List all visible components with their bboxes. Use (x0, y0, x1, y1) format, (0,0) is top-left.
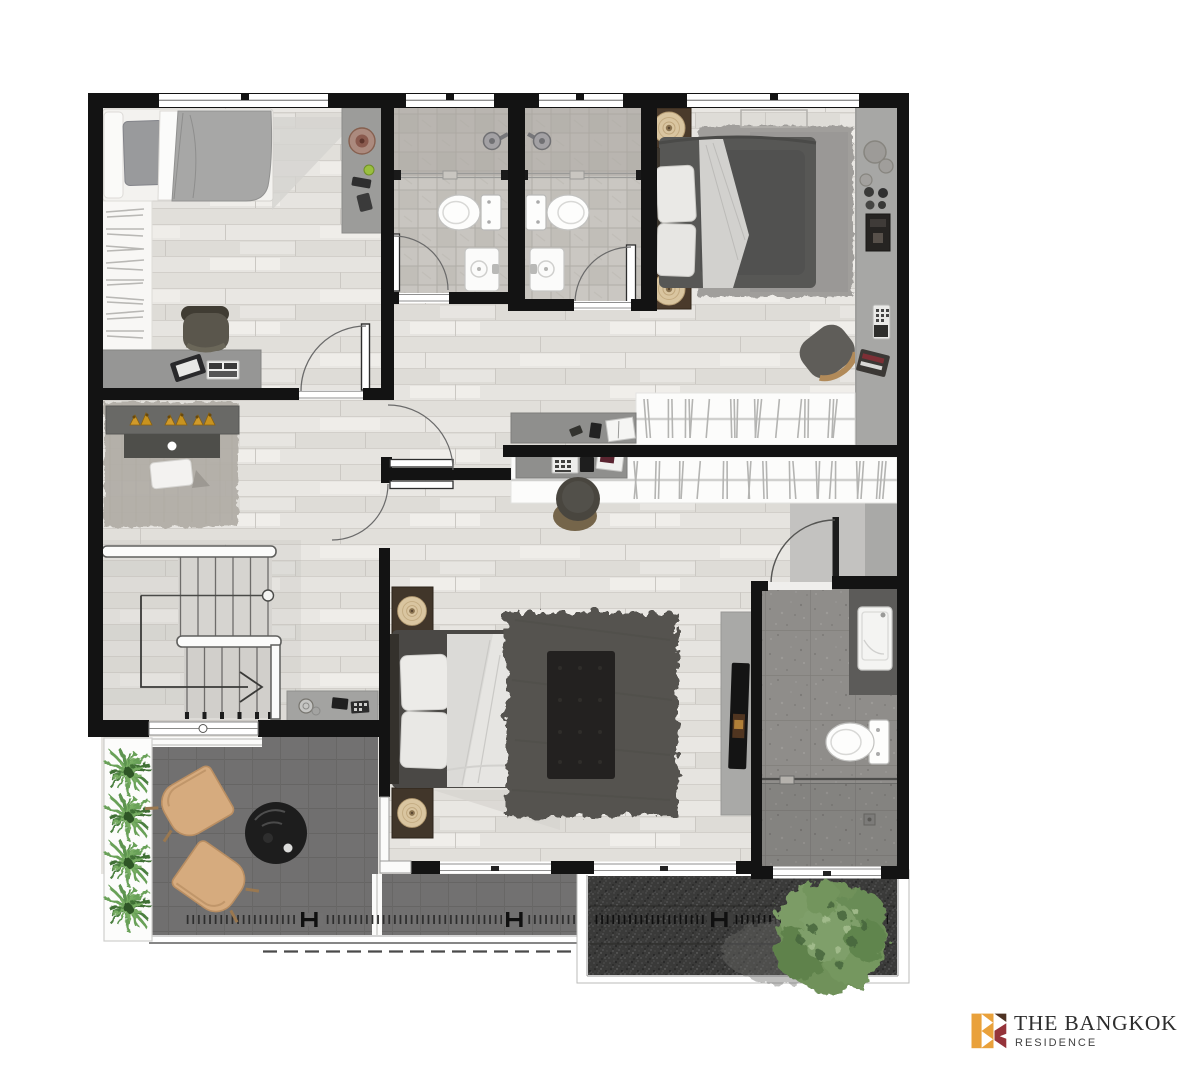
svg-text:RESIDENCE: RESIDENCE (1015, 1037, 1097, 1049)
svg-text:THE BANGKOK: THE BANGKOK (1014, 1011, 1177, 1035)
